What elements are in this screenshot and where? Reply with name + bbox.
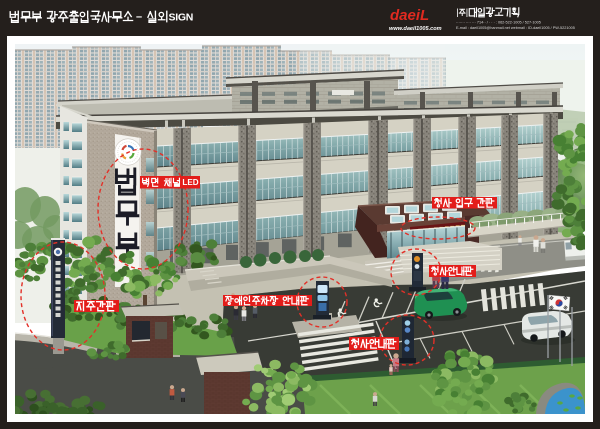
svg-text:······· ···· ··· 714·· / · · ·: ······· ···· ··· 714·· / · · · : 062-522… xyxy=(456,20,541,24)
svg-text:–: – xyxy=(136,11,142,23)
svg-text:SIGN: SIGN xyxy=(169,12,193,24)
svg-text:E-mail : daeil1005@hanmail.net: E-mail : daeil1005@hanmail.net webmail :… xyxy=(456,26,575,30)
svg-text:LED: LED xyxy=(182,178,198,187)
svg-text:daeiL: daeiL xyxy=(390,7,429,24)
svg-text:www.daeil1005.com: www.daeil1005.com xyxy=(389,26,442,32)
